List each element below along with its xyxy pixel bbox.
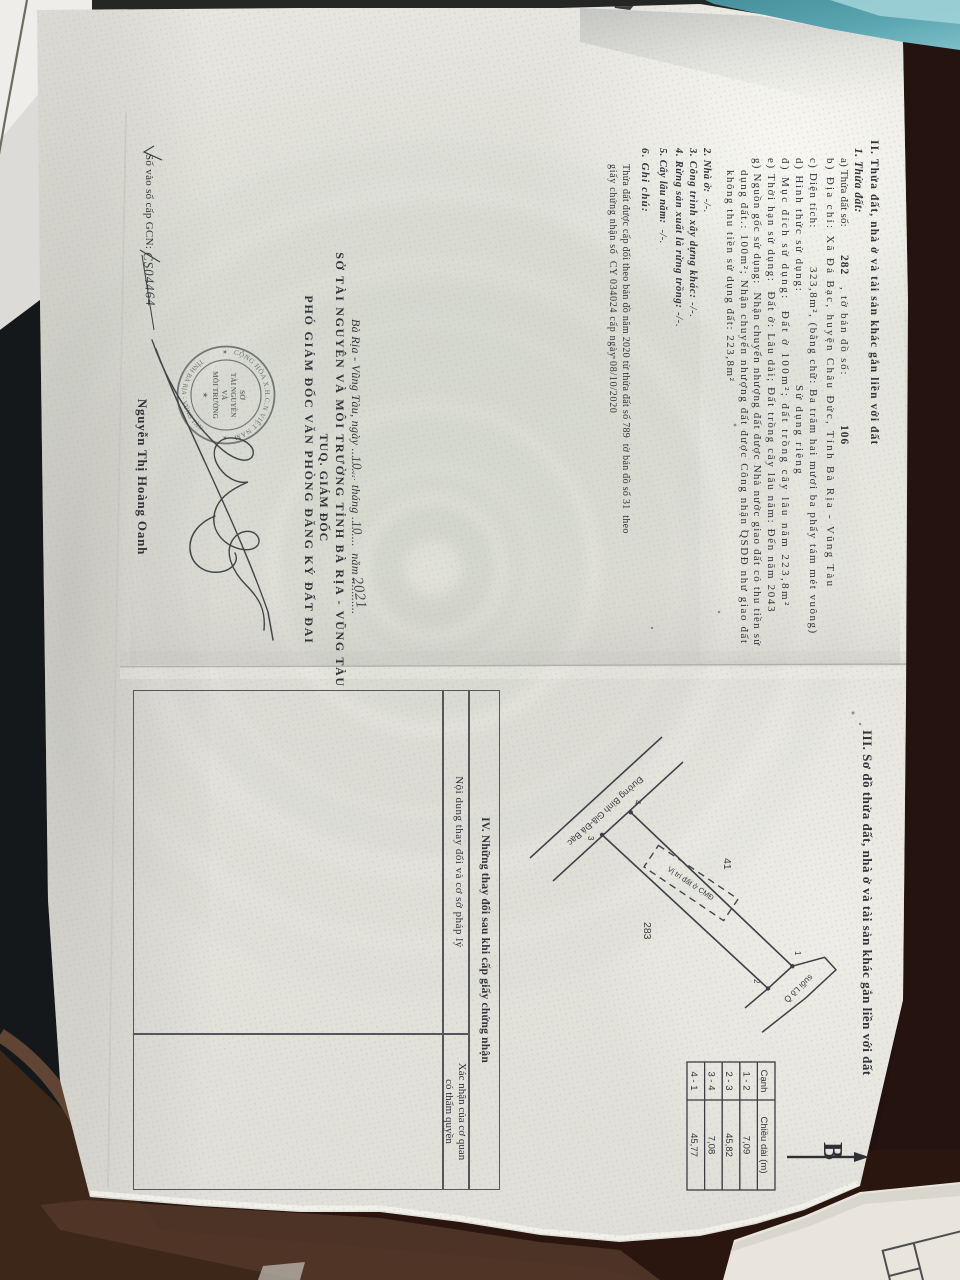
svg-text:1: 1 <box>793 951 802 956</box>
svg-text:2 - 3: 2 - 3 <box>723 1071 734 1090</box>
svg-text:3: 3 <box>586 836 595 841</box>
svg-text:VÀ: VÀ <box>220 390 228 400</box>
svg-text:3 - 4: 3 - 4 <box>706 1071 717 1090</box>
svg-text:Chiều dài (m): Chiều dài (m) <box>758 1116 769 1173</box>
svg-text:B: B <box>818 1142 848 1160</box>
svg-text:7,09: 7,09 <box>741 1136 752 1155</box>
svg-text:4: 4 <box>633 800 642 805</box>
svg-text:283: 283 <box>641 922 653 940</box>
svg-text:41: 41 <box>721 858 733 870</box>
svg-text:4 - 1: 4 - 1 <box>688 1071 699 1090</box>
svg-text:Cạnh: Cạnh <box>758 1070 769 1093</box>
svg-text:suối Lồ Ồ: suối Lồ Ồ <box>782 973 816 1006</box>
svg-text:TÀI NGUYÊN: TÀI NGUYÊN <box>229 373 237 418</box>
svg-text:SỞ: SỞ <box>238 390 248 400</box>
svg-text:★: ★ <box>221 349 228 354</box>
svg-text:★: ★ <box>201 392 209 398</box>
svg-text:1 - 2: 1 - 2 <box>741 1071 752 1090</box>
svg-text:2: 2 <box>752 979 761 984</box>
svg-text:45,82: 45,82 <box>723 1133 734 1157</box>
svg-text:MÔI TRƯỜNG: MÔI TRƯỜNG <box>211 371 219 419</box>
svg-text:7,08: 7,08 <box>706 1136 717 1155</box>
svg-text:45,77: 45,77 <box>688 1133 699 1157</box>
